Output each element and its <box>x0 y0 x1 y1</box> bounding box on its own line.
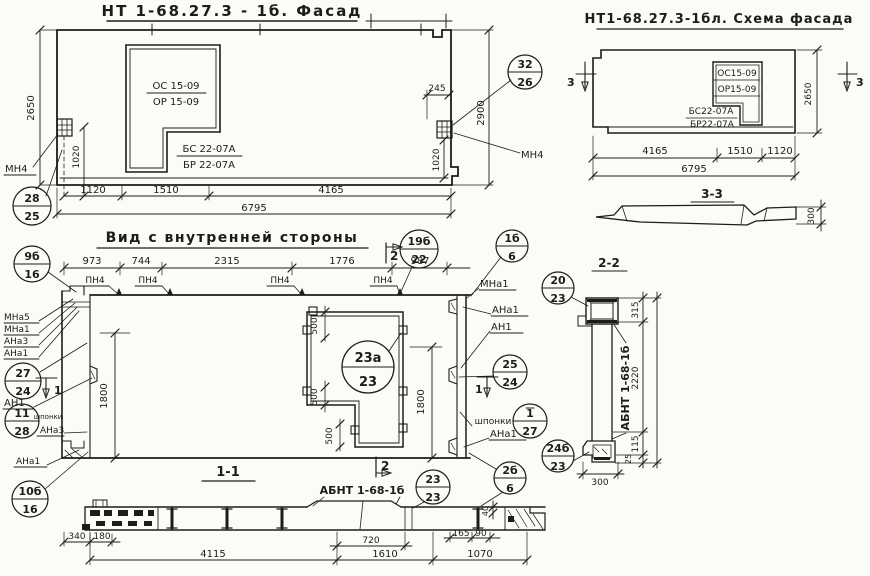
facade-dim-2900: 2900 <box>476 100 487 125</box>
schema-section-mark-left: 3 <box>567 62 596 91</box>
callout-27-24-bottom: 24 <box>15 385 31 398</box>
callout-10b-16-top: 10б <box>19 485 42 498</box>
facade-window-mark-br: БР 22-07А <box>183 160 235 171</box>
schema-dim-4165: 4165 <box>642 146 667 157</box>
schema-window-mark-bs: БС22-07А <box>689 107 735 117</box>
facade-panel-outline <box>57 30 458 185</box>
facade-dim-1020-right: 1020 <box>432 148 442 171</box>
label-mna5: МНа5 <box>4 313 30 323</box>
callout-25-24: 25 24 <box>459 355 527 389</box>
section-1-1-panel-ref: АБНТ 1-68-1б <box>320 484 405 497</box>
section-1-1-dim-720: 720 <box>362 536 379 546</box>
facade-dim-2650: 2650 <box>26 95 37 120</box>
facade-title: НТ 1-68.27.3 - 1б. Фасад <box>102 2 363 20</box>
callout-23-23-top: 23 <box>425 473 440 486</box>
callout-19b-22-top: 19б <box>408 235 431 248</box>
inner-panel <box>62 286 470 458</box>
inner-view-title: Вид с внутренней стороны <box>106 230 359 246</box>
callout-11-28: 11 28 <box>5 404 39 438</box>
section-1-1: 1-1 2 АБНТ 1-68-1б 23 23 <box>60 457 545 565</box>
callout-24b-23-top: 24б <box>547 442 570 455</box>
section-1-1-title: 1-1 <box>216 465 240 480</box>
facade-window-mark-bs: БС 22-07А <box>183 144 236 155</box>
label-ana3-left-bottom: АНа3 <box>40 426 64 436</box>
callout-20-23-top: 20 <box>550 274 566 287</box>
callout-9b-16-top: 9б <box>24 250 40 263</box>
section-1-1-dim-40: 40 <box>481 506 490 516</box>
inner-dim-1800-right: 1800 <box>416 389 427 414</box>
callout-1-27: 1 27 <box>513 404 547 438</box>
section-2-2-top-block <box>578 298 618 326</box>
label-shponki-right: шпонки <box>475 417 512 427</box>
inner-dim-500-a: 500 <box>310 317 320 334</box>
cut-mark-2-top: 2 <box>386 243 402 263</box>
cut-mark-2-bottom-label: 2 <box>381 459 389 473</box>
callout-28-25-top: 28 <box>24 192 39 205</box>
section-1-1-dim-90: 90 <box>475 529 487 539</box>
section-1-1-dim-4115: 4115 <box>200 549 225 560</box>
callout-19b-22: 19б 22 <box>400 230 438 294</box>
callout-23a-23-top: 23а <box>355 351 382 366</box>
facade-dim-4165: 4165 <box>318 185 343 196</box>
callout-2b-6-bottom: 6 <box>506 482 514 495</box>
facade-dim-245: 245 <box>428 84 445 94</box>
technical-drawing: НТ 1-68.27.3 - 1б. Фасад ОС 15-09 ОР 15-… <box>0 0 870 576</box>
inner-dim-744: 744 <box>131 256 150 267</box>
callout-24b-23-bottom: 23 <box>550 460 565 473</box>
callout-10b-16-bottom: 16 <box>22 503 38 516</box>
schema-section-mark-right: 3 <box>838 62 864 91</box>
callout-2b-6: 2б 6 <box>469 453 526 506</box>
label-ana1-bottom-left: АНа1 <box>16 457 40 467</box>
label-ana1-left-top: АНа1 <box>4 349 28 359</box>
callout-20-23-bottom: 23 <box>550 292 565 305</box>
label-an1-right: АН1 <box>491 322 512 333</box>
callout-2b-6-top: 2б <box>502 464 518 477</box>
callout-32-26-top: 32 <box>517 58 532 71</box>
inner-dim-2315: 2315 <box>214 256 239 267</box>
schema-section-mark-right-label: 3 <box>856 76 864 89</box>
callout-32-26-bottom: 26 <box>517 76 533 89</box>
callout-23a-23-bottom: 23 <box>359 375 377 390</box>
inner-dim-1776: 1776 <box>329 256 354 267</box>
section-2-2-dim-300: 300 <box>591 478 608 488</box>
section-1-1-dim-1610: 1610 <box>372 549 397 560</box>
facade-window-mark-os: ОС 15-09 <box>152 81 199 92</box>
schema-window-mark-br: БР22-07А <box>690 120 735 130</box>
facade-dim-1120: 1120 <box>80 185 105 196</box>
inner-left-labels: МНа5 МНа1 АНа3 АНа1 АН1 шпонки АНа3 АНа1 <box>3 299 92 467</box>
facade-anchor-label-right: МН4 <box>521 150 544 161</box>
callout-11-28-bottom: 28 <box>14 425 29 438</box>
section-2-2-bottom-block <box>583 441 615 462</box>
callout-1b-6-bottom: 6 <box>508 250 516 263</box>
callout-19b-22-bottom: 22 <box>411 253 426 266</box>
section-1-1-dim-1070: 1070 <box>467 549 492 560</box>
label-ana3-left: АНа3 <box>4 337 28 347</box>
section-1-1-dim-340: 340 <box>68 532 85 542</box>
inner-dim-1800-left: 1800 <box>99 383 110 408</box>
section-2-2-dim-115: 115 <box>631 435 641 452</box>
callout-11-28-top: 11 <box>14 407 29 420</box>
label-mna1-right: МНа1 <box>480 279 509 290</box>
section-2-2: 2-2 <box>542 256 661 488</box>
facade-dim-1510: 1510 <box>153 185 178 196</box>
section-3-3-profile <box>596 205 796 225</box>
callout-25-24-top: 25 <box>502 358 517 371</box>
label-ana1-right-bottom: АНа1 <box>490 429 517 440</box>
blueprint-sheet: НТ 1-68.27.3 - 1б. Фасад ОС 15-09 ОР 15-… <box>0 0 870 576</box>
callout-28-25-bottom: 25 <box>24 210 39 223</box>
schema-dim-1120: 1120 <box>767 146 792 157</box>
label-mna1-left: МНа1 <box>4 325 30 335</box>
section-3-3-dim-300: 300 <box>807 207 817 224</box>
callout-20-23: 20 23 <box>542 272 588 306</box>
facade-window-mark-or: ОР 15-09 <box>153 97 199 108</box>
inner-pn4-marks: ПН4 ПН4 ПН4 ПН4 <box>82 276 403 295</box>
schema-dim-2650: 2650 <box>804 82 814 105</box>
callout-23-23-bottom: 23 <box>425 491 440 504</box>
facade-view: НТ 1-68.27.3 - 1б. Фасад ОС 15-09 ОР 15-… <box>4 2 544 225</box>
cut-mark-1-right-label: 1 <box>475 383 483 396</box>
callout-1-27-top: 1 <box>526 407 534 420</box>
pn4-label-4: ПН4 <box>373 276 393 286</box>
schema-view: НТ1-68.27.3-1бл. Схема фасада ОС15-09 ОР… <box>567 12 864 231</box>
cut-mark-2-top-label: 2 <box>390 249 398 263</box>
inner-dim-973: 973 <box>82 256 101 267</box>
callout-23-23: 23 23 <box>413 470 450 508</box>
section-2-2-title: 2-2 <box>598 256 620 270</box>
cut-mark-2-bottom: 2 <box>376 457 391 477</box>
pn4-label-3: ПН4 <box>270 276 290 286</box>
pn4-label-1: ПН4 <box>85 276 105 286</box>
section-2-2-dim-2220: 2220 <box>631 366 641 389</box>
schema-window-mark-or: ОР15-09 <box>718 85 757 95</box>
inner-dim-500-c: 500 <box>325 427 335 444</box>
callout-24b-23: 24б 23 <box>542 440 589 473</box>
inner-view: Вид с внутренней стороны 973 744 2315 17… <box>3 230 547 517</box>
section-1-1-dim-165: 165 <box>452 529 469 539</box>
rib-marks <box>167 509 483 528</box>
facade-anchor-right <box>437 121 452 138</box>
callout-1b-6-top: 1б <box>504 232 520 245</box>
label-ana1-right-top: АНа1 <box>492 305 519 316</box>
inner-top-dimensions <box>60 262 470 275</box>
schema-dim-6795: 6795 <box>681 164 706 175</box>
inner-dim-500-b: 500 <box>310 388 320 405</box>
facade-anchor-label-left: МН4 <box>5 164 28 175</box>
schema-dim-1510: 1510 <box>727 146 752 157</box>
section-2-2-dim-25: 25 <box>624 454 633 464</box>
section-3-3-title: 3-3 <box>701 187 723 201</box>
section-3-3: 3-3 300 <box>596 187 826 231</box>
section-2-2-panel-ref: АБНТ 1-68-1б <box>619 345 632 430</box>
callout-9b-16-bottom: 16 <box>24 268 40 281</box>
callout-25-24-bottom: 24 <box>502 376 518 389</box>
facade-dim-6795: 6795 <box>241 203 266 214</box>
callout-27-24-top: 27 <box>15 367 30 380</box>
schema-title: НТ1-68.27.3-1бл. Схема фасада <box>585 12 854 27</box>
section-1-1-dim-180: 180 <box>93 532 110 542</box>
schema-window-mark-os: ОС15-09 <box>717 69 757 79</box>
facade-dim-1020-left: 1020 <box>72 145 82 168</box>
callout-32-26: 32 26 <box>453 55 542 125</box>
section-1-1-strip <box>82 500 545 530</box>
callout-9b-16: 9б 16 <box>14 246 76 292</box>
inner-right-labels: МНа1 АНа1 АН1 шпонки АНа1 <box>460 279 528 447</box>
callout-23a-23: 23а 23 <box>342 333 401 393</box>
pn4-label-2: ПН4 <box>138 276 158 286</box>
section-2-2-dim-315: 315 <box>631 301 641 318</box>
callout-1-27-bottom: 27 <box>522 425 537 438</box>
schema-section-mark-left-label: 3 <box>567 76 575 89</box>
